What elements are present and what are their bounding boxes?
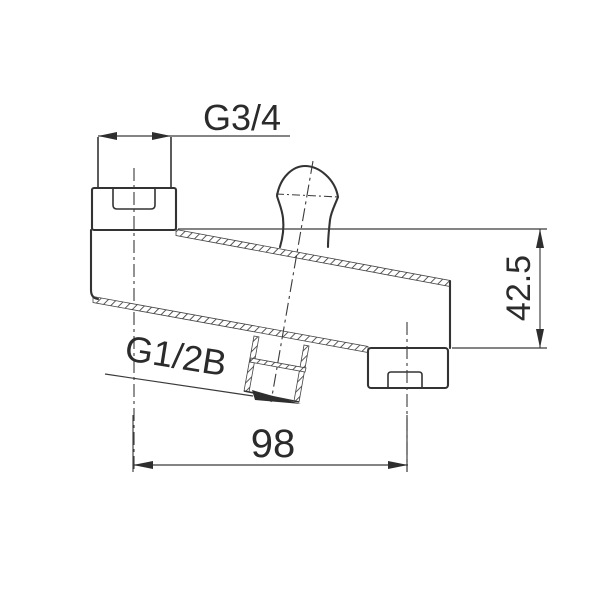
knob-outline bbox=[277, 166, 338, 247]
dimension-top-thread: G3/4 bbox=[98, 97, 290, 140]
dimension-length: 98 bbox=[133, 415, 408, 472]
end-connector bbox=[368, 322, 448, 472]
leader-line bbox=[105, 374, 253, 396]
height-label: 42.5 bbox=[500, 255, 538, 321]
outlet-right-edge bbox=[294, 345, 309, 402]
drawing-canvas: G3/4 G1/2B 98 42.5 bbox=[0, 0, 615, 615]
body-left-edge bbox=[91, 230, 98, 299]
leader-arrowhead bbox=[252, 390, 301, 404]
arrowhead-right bbox=[152, 132, 171, 140]
arrowhead-bottom bbox=[536, 329, 544, 348]
top-thread-label: G3/4 bbox=[203, 97, 281, 138]
arrowhead-left bbox=[98, 132, 117, 140]
outlet-left-edge bbox=[244, 336, 259, 392]
arrowhead-right bbox=[388, 461, 408, 469]
bath-spout-technical-drawing: G3/4 G1/2B 98 42.5 bbox=[0, 0, 615, 615]
end-connector-recess bbox=[388, 372, 422, 388]
outlet-thread-label: G1/2B bbox=[122, 327, 229, 383]
dimension-height: 42.5 bbox=[178, 229, 547, 348]
end-connector-nut bbox=[368, 348, 448, 388]
body-top-edge bbox=[176, 230, 450, 287]
arrowhead-left bbox=[133, 461, 153, 469]
arrowhead-top bbox=[536, 229, 544, 248]
length-label: 98 bbox=[251, 422, 296, 466]
